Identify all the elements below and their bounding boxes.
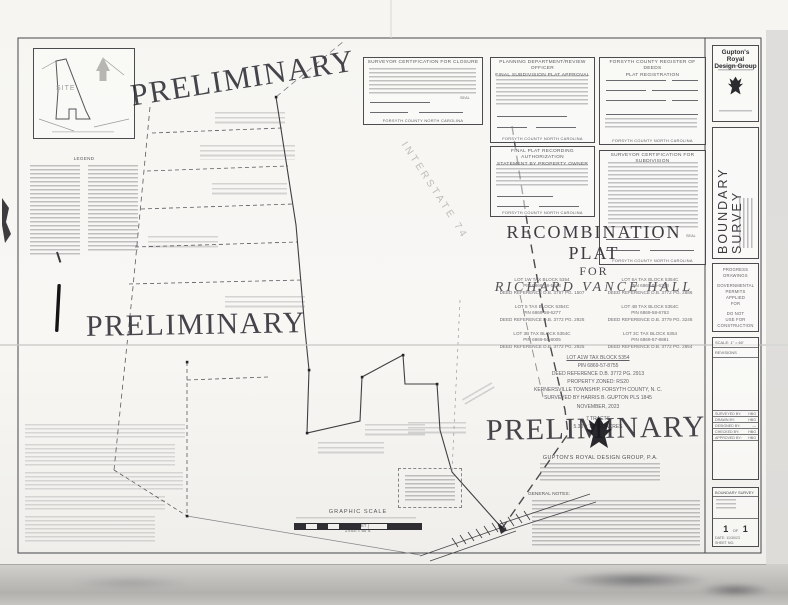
lot-ref: LOT 5 TAX BLOCK 5354CPIN 6869-58-6277DEE…	[488, 304, 596, 323]
revisions-box: SCALE: 1" = 60' REVISIONS SURVEYED BY:HB…	[712, 337, 759, 480]
parcel-label	[212, 183, 287, 197]
summary-date: NOVEMBER, 2023	[498, 403, 698, 411]
general-notes-body	[532, 500, 700, 548]
firm-logo-tagline	[718, 65, 753, 73]
cert-deeds-county: FORSYTH COUNTY NORTH CAROLINA	[600, 138, 705, 143]
cert-planning-county: FORSYTH COUNTY NORTH CAROLINA	[491, 136, 594, 141]
sheet-title-lines	[716, 499, 736, 511]
legend: LEGEND	[28, 156, 140, 162]
seal-label: SEAL	[460, 96, 470, 100]
cert-closure-box: SURVEYOR CERTIFICATION FOR CLOSURE SEAL …	[363, 57, 483, 125]
firm-address	[540, 463, 660, 483]
firm-logo-name-1: Gupton's Royal	[713, 49, 758, 63]
graphic-scale-title: GRAPHIC SCALE	[288, 509, 428, 515]
permit-line: FOR	[713, 301, 758, 307]
parcel-label	[408, 422, 466, 435]
lot-ref: LOT 3C TAX BLOCK 5354PIN 6869-57-8881DEE…	[596, 331, 704, 350]
firm-crest-icon	[727, 75, 744, 97]
watermark-preliminary-middle: PRELIMINARY	[86, 306, 306, 344]
summary-deed: DEED REFERENCE D.B. 3772 PG. 2913	[498, 370, 698, 378]
progress-stamp-box: PROGRESS DRAWINGS GOVERNMENTAL PERMITS A…	[712, 263, 759, 332]
scan-smudge	[700, 583, 770, 597]
firm-block: GUPTON'S ROYAL DESIGN GROUP, P.A.	[498, 455, 703, 461]
legend-column	[88, 165, 138, 251]
sheet-date: DATE: 11/30/23	[715, 536, 740, 540]
permit-line: GOVERNMENTAL	[713, 283, 758, 289]
lot-ref: LOT 3B TAX BLOCK 5354CPIN 6869-56-8005DE…	[488, 331, 596, 350]
scale-bar	[294, 523, 422, 530]
general-notes: GENERAL NOTES:	[528, 492, 704, 497]
cert-closure-title: SURVEYOR CERTIFICATION FOR CLOSURE	[364, 60, 482, 66]
firm-logo-box: Gupton's Royal Design Group	[712, 45, 759, 122]
cert-recording-box: FINAL PLAT RECORDING AUTHORIZATION STATE…	[490, 146, 595, 217]
graphic-scale: GRAPHIC SCALE ( IN FEET ) 1 inch = 60 ft…	[288, 509, 428, 533]
cert-recording-title1: FINAL PLAT RECORDING AUTHORIZATION	[491, 149, 594, 162]
summary-pin: PIN 6869-57-8755	[498, 362, 698, 370]
vicinity-site-label: SITE	[56, 85, 76, 92]
lot-ref: LOT 1W TAX BLOCK 5354PIN 6869-58-5248DEE…	[488, 277, 596, 296]
crew-row: SURVEYED BY:HBG	[713, 410, 758, 416]
summary-surveyor: SURVEYED BY HARRIS B. GUPTON PLS 1845	[498, 394, 698, 402]
vicinity-map: SITE	[33, 48, 135, 139]
cert-closure-body	[369, 68, 476, 94]
parcel-label	[200, 145, 295, 160]
cert-planning-box: PLANNING DEPARTMENT/REVIEW OFFICER FINAL…	[490, 57, 595, 143]
scanned-plat-sheet: INTERSTATE 74 SITE LEGEND SURVEYOR CERTI…	[0, 0, 788, 605]
sheet-no-label: SHEET NO.	[715, 541, 734, 545]
sheet-title-box: BOUNDARY SURVEY 1 OF 1 DATE: 11/30/23 SH…	[712, 487, 759, 547]
revisions-blank	[713, 358, 758, 410]
crew-row: APPROVED BY:HBG	[713, 434, 758, 441]
cert-deeds-title1: FORSYTH COUNTY REGISTER OF DEEDS	[600, 60, 705, 73]
cert-planning-title1: PLANNING DEPARTMENT/REVIEW OFFICER	[491, 60, 594, 73]
scan-bottom-band	[0, 565, 788, 605]
scale-label: SCALE: 1" = 60'	[713, 338, 758, 348]
plat-title: RECOMBINATION PLAT	[480, 222, 708, 264]
lot-reference-grid: LOT 1W TAX BLOCK 5354PIN 6869-58-5248DEE…	[488, 277, 704, 355]
revisions-label: REVISIONS	[713, 348, 758, 358]
benchmark-text	[405, 475, 455, 501]
firm-logo-footer	[719, 110, 752, 114]
sheet-title-header: BOUNDARY SURVEY	[713, 488, 758, 497]
crest-stamp-icon	[584, 415, 614, 451]
cert-deeds-body	[605, 118, 697, 130]
north-arrow-icon	[96, 57, 110, 81]
scale-tick-numbers	[296, 517, 416, 521]
lot-ref: LOT 6A TAX BLOCK 5354CPIN 6869-58-6348DE…	[596, 277, 704, 296]
firm-name: GUPTON'S ROYAL DESIGN GROUP, P.A.	[498, 455, 703, 461]
lot-ref: LOT 4B TAX BLOCK 5354CPIN 6869-58-6763DE…	[596, 304, 704, 323]
cert-deeds-box: FORSYTH COUNTY REGISTER OF DEEDS PLAT RE…	[599, 57, 706, 145]
summary-township: KERNERSVILLE TOWNSHIP, FORSYTH COUNTY, N…	[498, 386, 698, 394]
vicinity-map-graphic	[34, 49, 134, 138]
general-notes-title: GENERAL NOTES:	[528, 492, 704, 497]
scan-smudge	[70, 577, 190, 589]
parcel-label	[215, 112, 285, 125]
scan-right-edge	[766, 30, 788, 565]
summary-lot: LOT A1W TAX BLOCK 5354	[498, 354, 698, 362]
parcel-label	[318, 442, 384, 456]
parcel-label	[148, 236, 218, 249]
cert-recording-body	[496, 164, 588, 188]
crew-row: CHECKED BY:HBG	[713, 428, 758, 434]
vicinity-caption	[52, 131, 114, 135]
cert-recording-county: FORSYTH COUNTY NORTH CAROLINA	[491, 210, 594, 215]
cert-planning-body	[496, 75, 588, 107]
cert-subdivision-body	[608, 162, 698, 230]
benchmark-box	[398, 468, 462, 508]
sheet-type-box: BOUNDARY SURVEY	[712, 127, 759, 259]
construction-line: CONSTRUCTION	[713, 323, 758, 329]
client-info-vertical	[739, 198, 753, 248]
summary-zoning: PROPERTY ZONED: RS20	[498, 378, 698, 386]
cert-closure-county: FORSYTH COUNTY NORTH CAROLINA	[364, 118, 482, 123]
legend-column	[30, 165, 80, 257]
tract-boundary-line	[276, 97, 501, 527]
cert-deeds-title2: PLAT REGISTRATION	[600, 73, 705, 79]
sheet-number: 1 OF 1	[713, 518, 758, 537]
scan-smudge	[560, 571, 710, 589]
legend-title: LEGEND	[28, 156, 140, 162]
progress-line: DRAWINGS	[713, 273, 758, 279]
